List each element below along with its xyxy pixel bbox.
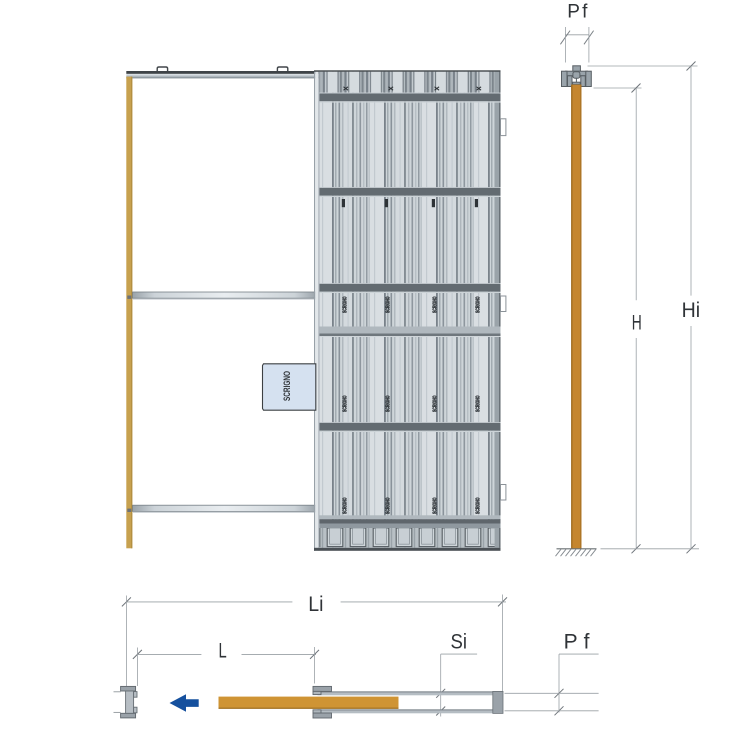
svg-text:SCRIGNO: SCRIGNO [433, 297, 439, 314]
svg-text:SCRIGNO: SCRIGNO [386, 498, 392, 515]
svg-text:SCRIGNO: SCRIGNO [343, 498, 349, 515]
svg-text:SCRIGNO: SCRIGNO [433, 396, 439, 413]
svg-text:Pf: Pf [567, 2, 589, 23]
svg-text:Li: Li [308, 593, 323, 616]
svg-text:SCRIGNO: SCRIGNO [343, 396, 349, 413]
svg-text:H: H [632, 312, 642, 335]
svg-text:SCRIGNO: SCRIGNO [433, 498, 439, 515]
svg-text:SCRIGNO: SCRIGNO [476, 498, 482, 515]
svg-text:Si: Si [451, 631, 468, 654]
svg-text:SCRIGNO: SCRIGNO [343, 297, 349, 314]
svg-text:Hi: Hi [682, 299, 701, 322]
svg-text:L: L [219, 639, 227, 662]
svg-text:SCRIGNO: SCRIGNO [386, 396, 392, 413]
svg-text:Pf: Pf [564, 631, 596, 654]
svg-text:SCRIGNO: SCRIGNO [476, 297, 482, 314]
svg-text:SCRIGNO: SCRIGNO [386, 297, 392, 314]
svg-text:SCRIGNO: SCRIGNO [476, 396, 482, 413]
svg-text:SCRIGNO: SCRIGNO [282, 371, 292, 401]
